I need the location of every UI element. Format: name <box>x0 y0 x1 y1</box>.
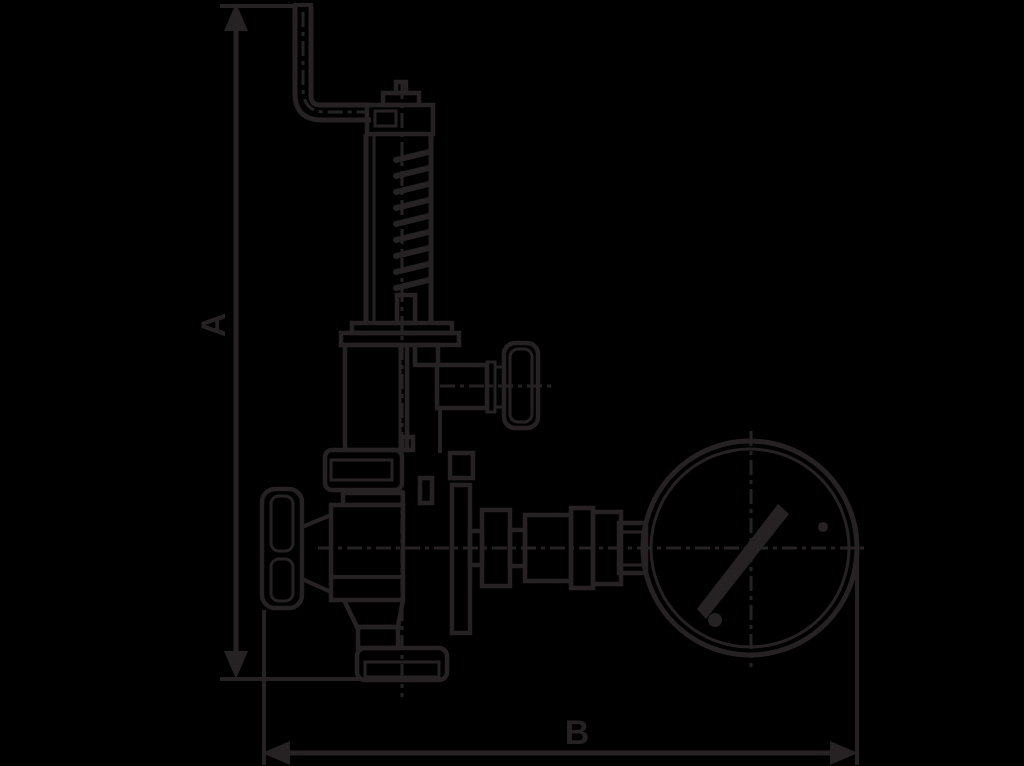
spring-guide-rod <box>397 295 415 323</box>
dimension-a-label: A <box>195 313 233 338</box>
arrowhead-down-icon <box>224 651 248 679</box>
outlet-bracket <box>450 453 473 478</box>
spring-cap <box>367 105 433 134</box>
drawing-canvas: A B <box>0 0 1024 766</box>
gauge-screw-dot-left <box>708 613 722 627</box>
valve-dimension-drawing: A B <box>0 0 1024 766</box>
inlet-neck <box>358 627 398 648</box>
handwheel-inner-bottom <box>271 559 293 601</box>
mid-flange-assembly <box>325 450 402 490</box>
mid-flange-inner <box>331 460 392 480</box>
handwheel-rim <box>262 489 302 608</box>
spring-cap-detail <box>375 111 396 126</box>
gauge-needle <box>697 504 789 619</box>
bonnet-right-neck <box>415 345 438 365</box>
outlet-flange-plate <box>452 485 470 633</box>
handwheel-stem-top <box>302 515 331 527</box>
body-outline <box>331 505 403 600</box>
body-bottom-taper <box>344 600 403 627</box>
handwheel-stem-bottom <box>302 579 331 592</box>
mid-flange-outer <box>325 450 402 490</box>
top-cap-assembly <box>367 82 433 134</box>
gauge-screw-dot-right <box>818 522 828 532</box>
arrowhead-left-icon <box>262 741 290 765</box>
handwheel-inner-top <box>271 496 293 551</box>
bonnet-body <box>345 345 407 450</box>
lever-pipe-inner-wall <box>311 6 371 105</box>
dimension-b-label: B <box>565 714 590 752</box>
valve-body <box>331 493 403 627</box>
outlet-coupling-train <box>452 485 646 633</box>
centerlines <box>303 12 869 697</box>
body-right-stub <box>420 478 432 503</box>
arrowhead-right-icon <box>830 741 858 765</box>
spring-housing <box>341 134 459 345</box>
